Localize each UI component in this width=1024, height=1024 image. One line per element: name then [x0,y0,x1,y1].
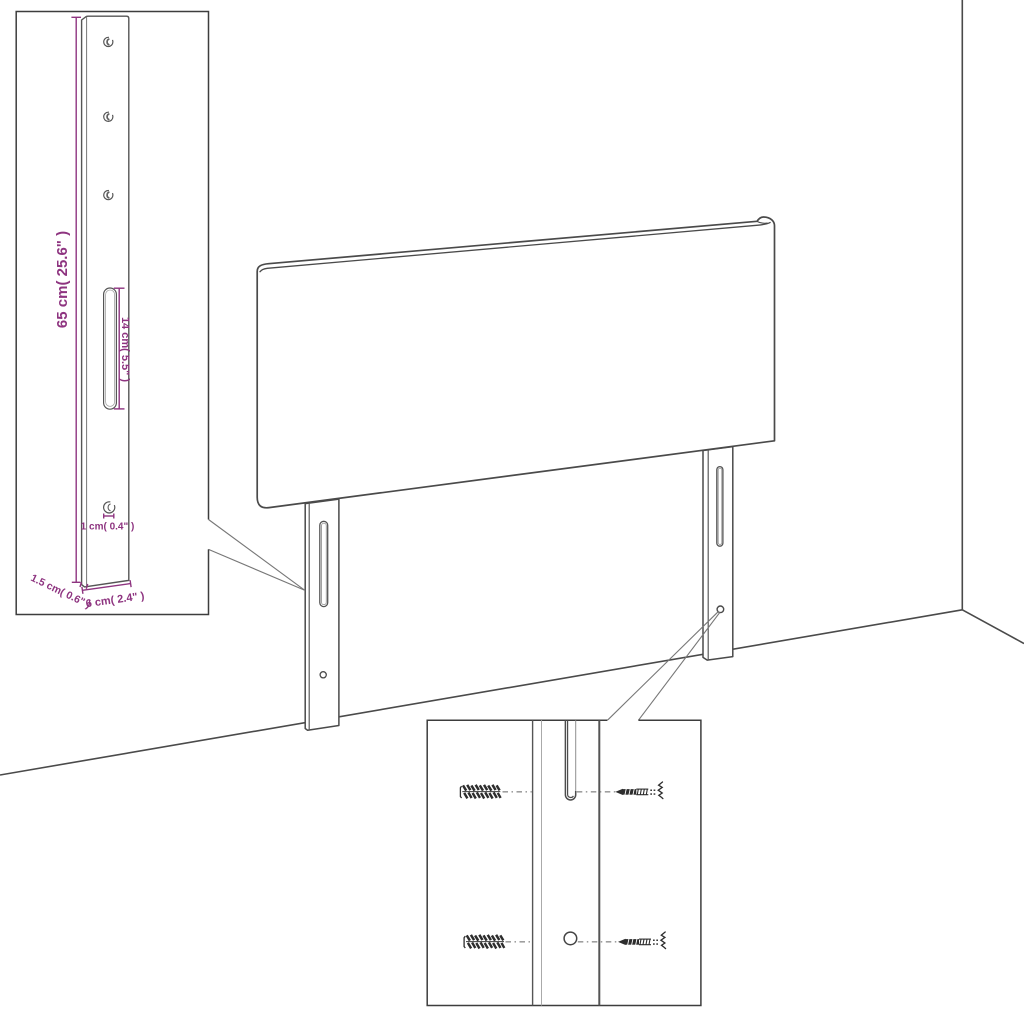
svg-text:65 cm( 25.6" ): 65 cm( 25.6" ) [54,231,71,328]
svg-text:14 cm( 5.5" ): 14 cm( 5.5" ) [119,317,131,382]
svg-text:1 cm( 0.4" ): 1 cm( 0.4" ) [81,522,135,533]
